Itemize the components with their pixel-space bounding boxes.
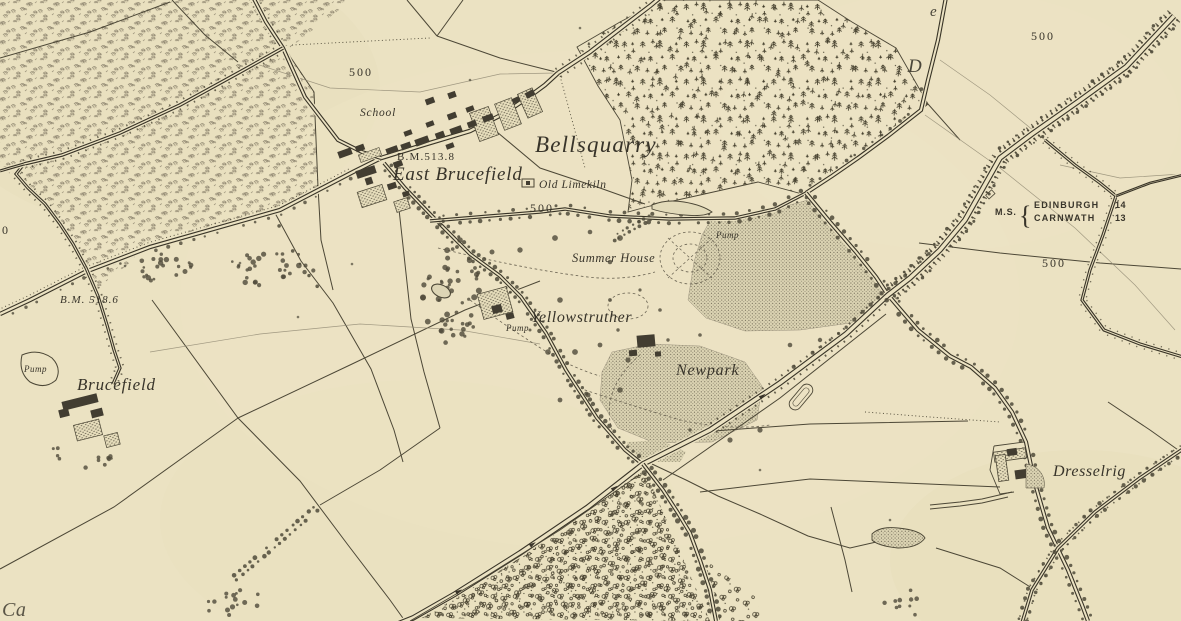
svg-text:Yellowstruther: Yellowstruther (531, 309, 632, 326)
svg-text:500: 500 (0, 223, 10, 237)
svg-text:Pump: Pump (505, 323, 529, 333)
svg-text:Old Limekiln: Old Limekiln (539, 179, 607, 191)
svg-text:500: 500 (1031, 29, 1055, 43)
svg-text:500: 500 (349, 65, 373, 79)
svg-text:Dresselrig: Dresselrig (1052, 463, 1126, 480)
svg-text:500: 500 (1042, 256, 1066, 270)
svg-text:Bellsquarry: Bellsquarry (535, 132, 657, 157)
svg-text:e: e (930, 4, 937, 20)
svg-text:500: 500 (530, 201, 554, 215)
svg-text:Summer House: Summer House (572, 251, 655, 265)
svg-text:CARNWATH: CARNWATH (1034, 213, 1095, 223)
svg-text:M.S.: M.S. (995, 207, 1017, 217)
svg-text:B.M. 518.6: B.M. 518.6 (60, 294, 119, 306)
svg-text:School: School (360, 107, 396, 119)
svg-text:Pump: Pump (23, 364, 47, 374)
svg-text:East Brucefield: East Brucefield (392, 164, 523, 185)
svg-text:Ca: Ca (2, 599, 26, 621)
svg-text:D: D (907, 56, 922, 77)
svg-text:Pump: Pump (715, 230, 739, 240)
svg-text:13: 13 (1115, 213, 1126, 223)
svg-text:14: 14 (1115, 200, 1126, 210)
svg-text:{: { (1019, 201, 1031, 230)
svg-text:Newpark: Newpark (675, 362, 739, 379)
svg-text:Brucefield: Brucefield (77, 375, 156, 394)
svg-text:B.M.513.8: B.M.513.8 (397, 151, 455, 163)
svg-text:EDINBURGH: EDINBURGH (1034, 200, 1099, 210)
